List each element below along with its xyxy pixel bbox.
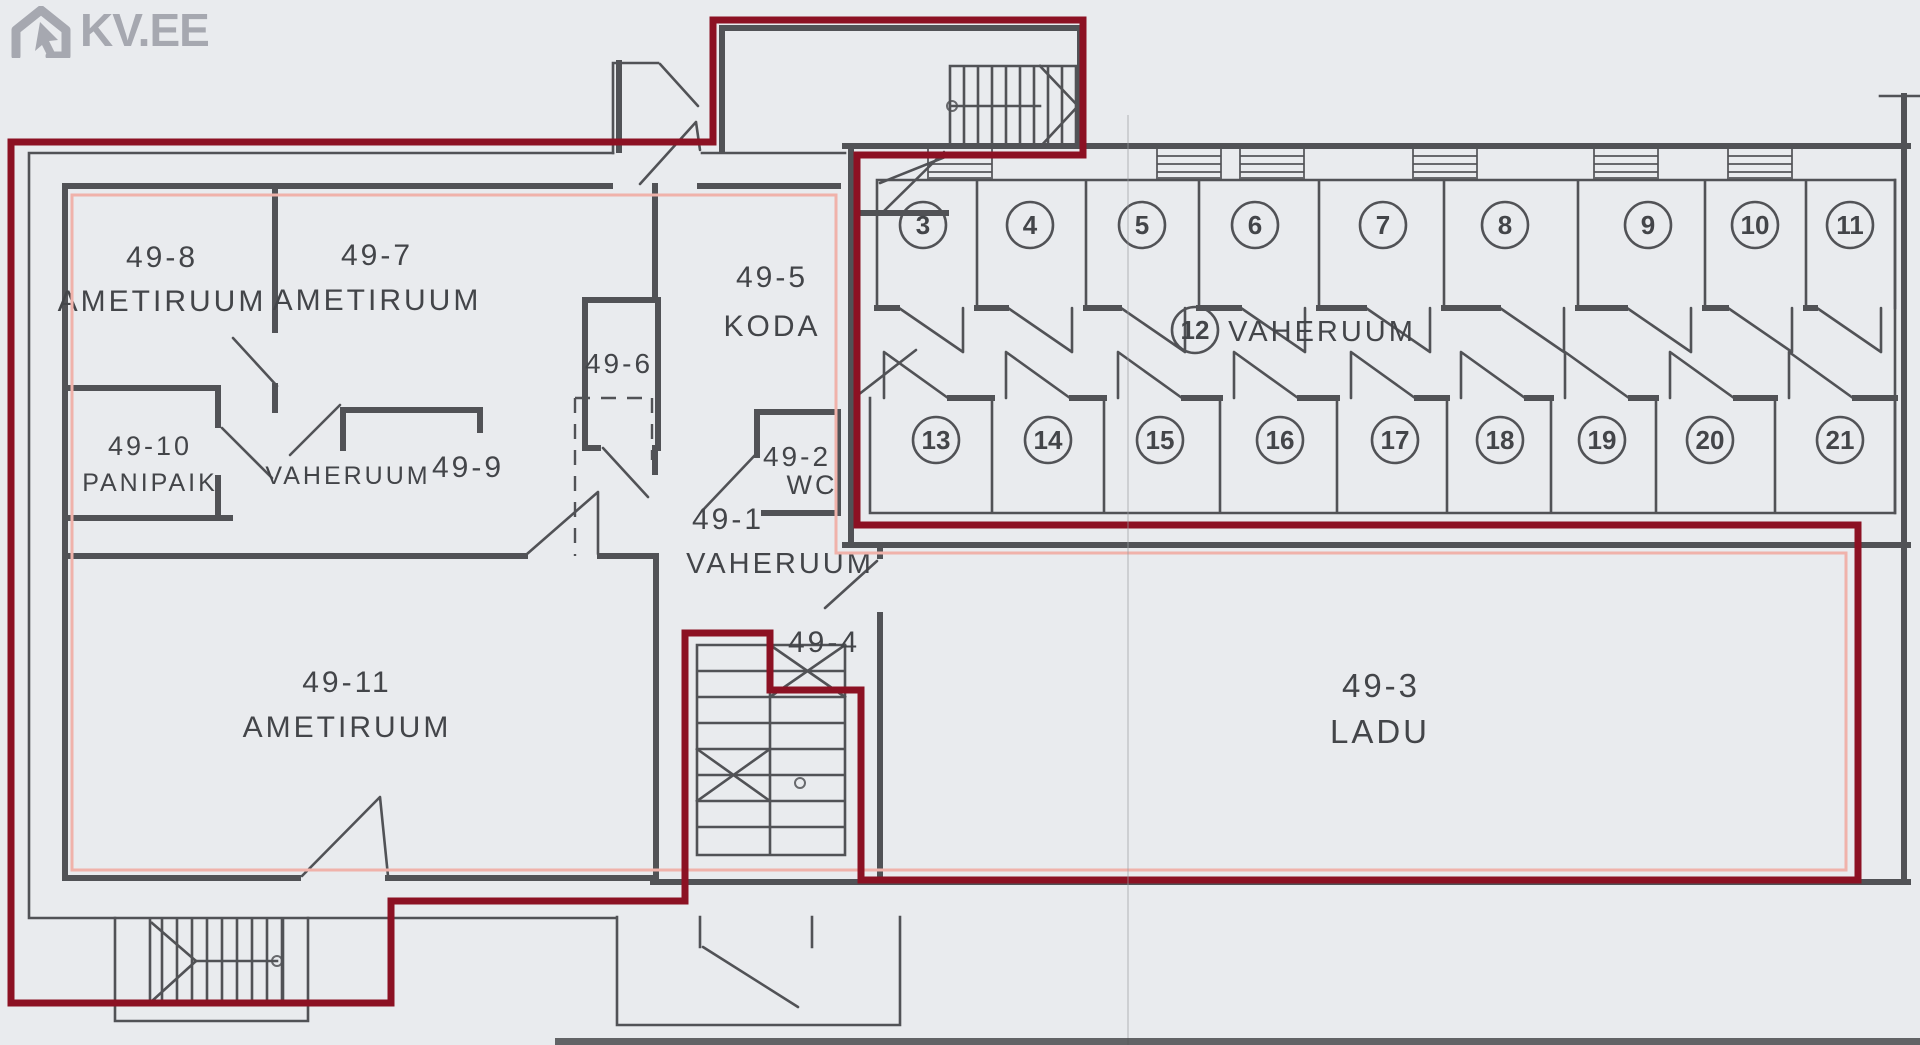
room-label: LADU	[1330, 713, 1430, 750]
room-label: 49-1	[692, 503, 764, 536]
room-labels: 49-8AMETIRUUM49-7AMETIRUUM49-5KODA49-649…	[58, 239, 1430, 750]
window-hatch	[1728, 148, 1792, 178]
storage-number: 12	[1181, 315, 1210, 345]
room-label: 49-9	[432, 451, 504, 484]
staircase-top	[947, 66, 1080, 147]
room-label: KODA	[723, 310, 820, 343]
floorplan-drawing: 49-8AMETIRUUM49-7AMETIRUUM49-5KODA49-649…	[0, 0, 1920, 1045]
storage-number: 4	[1023, 210, 1038, 240]
storage-number: 9	[1641, 210, 1655, 240]
storage-number: 3	[916, 210, 930, 240]
logo-text: KV.EE	[80, 7, 209, 53]
room-label: 49-7	[341, 239, 413, 272]
window-hatch	[1413, 148, 1477, 178]
property-boundary-outline	[11, 20, 1858, 1003]
storage-number: 11	[1836, 210, 1864, 240]
room-label: 49-4	[788, 626, 860, 659]
room-label: AMETIRUUM	[273, 284, 482, 317]
home-icon	[10, 6, 72, 58]
storage-number: 5	[1135, 210, 1149, 240]
storage-number: 18	[1486, 425, 1515, 455]
room-label: WC	[787, 470, 838, 500]
window-hatch	[1240, 148, 1304, 178]
room-label: AMETIRUUM	[58, 285, 267, 318]
room-label: 49-5	[736, 261, 808, 294]
room-label: 49-2	[763, 441, 831, 472]
room-label: 49-6	[585, 348, 653, 379]
storage-number: 7	[1376, 210, 1390, 240]
storage-number: 20	[1696, 425, 1725, 455]
room-label: 49-11	[302, 666, 392, 699]
storage-number: 21	[1826, 425, 1855, 455]
room-label: 49-3	[1342, 667, 1420, 704]
storage-number: 6	[1248, 210, 1262, 240]
storage-number: 15	[1146, 425, 1175, 455]
room-label: AMETIRUUM	[243, 711, 452, 744]
storage-unit-numbers: 3456789101113141516171819202112VAHERUUM	[900, 202, 1873, 463]
room-label: PANIPAIK	[82, 469, 218, 497]
room-label: 49-8	[126, 241, 198, 274]
storage-number: 10	[1741, 210, 1770, 240]
room-label: VAHERUUM	[265, 462, 430, 490]
storage-number: 16	[1266, 425, 1295, 455]
corridor-label: VAHERUUM	[1228, 316, 1416, 348]
scan-edge-shadow	[555, 1038, 1920, 1045]
storage-number: 19	[1588, 425, 1617, 455]
kvee-logo: KV.EE	[10, 6, 209, 58]
storage-number: 14	[1034, 425, 1063, 455]
room-label: 49-10	[108, 431, 192, 461]
staircase-bottom-left	[152, 920, 282, 1003]
storage-number: 17	[1381, 425, 1410, 455]
floorplan-page: 49-8AMETIRUUM49-7AMETIRUUM49-5KODA49-649…	[0, 0, 1920, 1045]
window-hatch	[1594, 148, 1658, 178]
storage-number: 13	[922, 425, 951, 455]
storage-number: 8	[1498, 210, 1512, 240]
window-hatch	[1157, 148, 1221, 178]
